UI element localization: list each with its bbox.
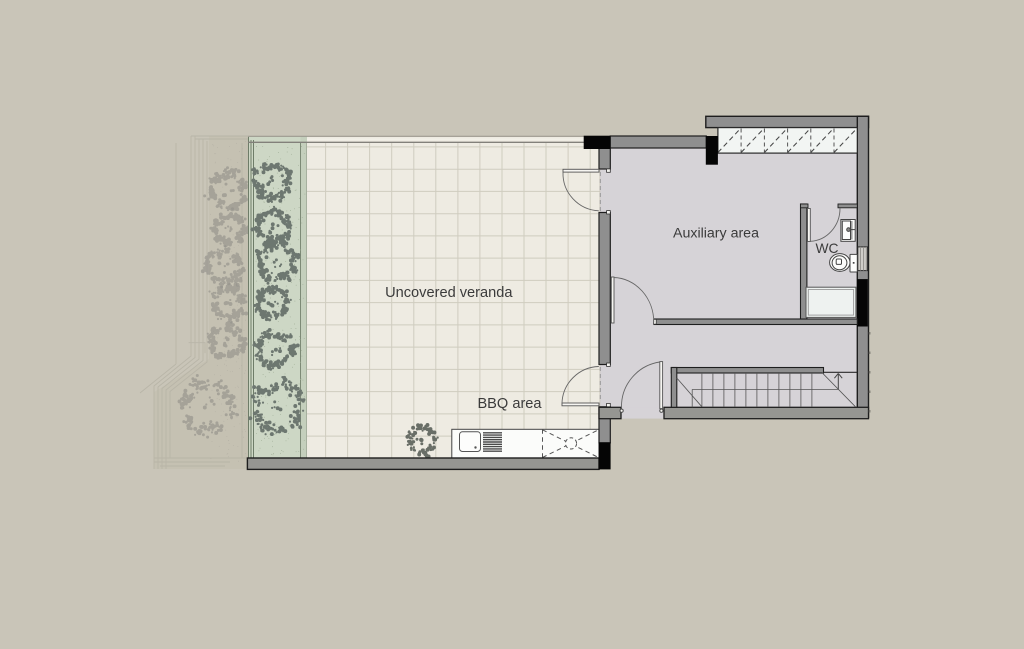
svg-text:Uncovered veranda: Uncovered veranda xyxy=(385,285,513,301)
svg-text:Auxiliary area: Auxiliary area xyxy=(673,225,759,241)
svg-text:BBQ area: BBQ area xyxy=(477,396,542,412)
svg-text:WC: WC xyxy=(816,241,839,256)
